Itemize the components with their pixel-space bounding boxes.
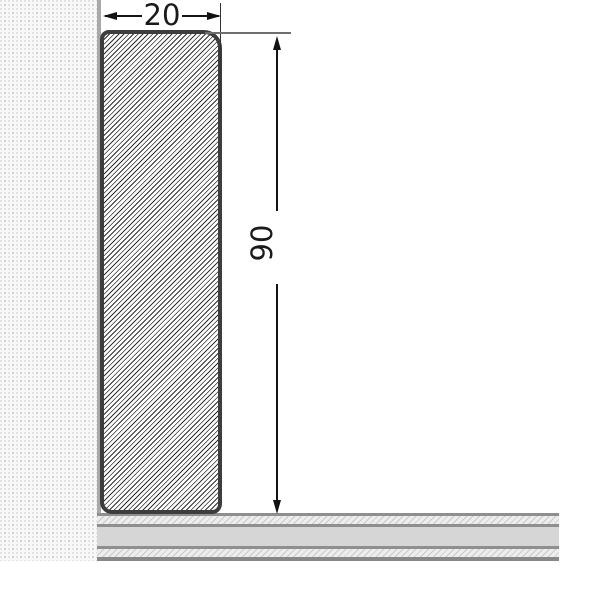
floor-core-layer (97, 527, 559, 546)
height-dim-line-top (276, 47, 278, 211)
width-dim-line-left (105, 15, 142, 17)
height-extension-line (205, 32, 291, 34)
width-extension-line (220, 3, 221, 113)
wall-texture (0, 0, 97, 561)
dim-arrow-down-icon (273, 500, 281, 514)
floor-hatch-layer-top (97, 516, 559, 524)
height-dim-line-bottom (276, 284, 278, 502)
floor-section (97, 513, 559, 561)
width-dim-label: 20 (138, 0, 186, 30)
floor-bottom-edge (97, 557, 559, 561)
height-dim-label: 90 (232, 213, 292, 273)
skirting-board-diagram: 20 90 (0, 0, 604, 604)
floor-hatch-layer-bottom (97, 549, 559, 557)
dim-arrow-right-icon (207, 12, 221, 20)
skirting-profile (100, 30, 222, 514)
